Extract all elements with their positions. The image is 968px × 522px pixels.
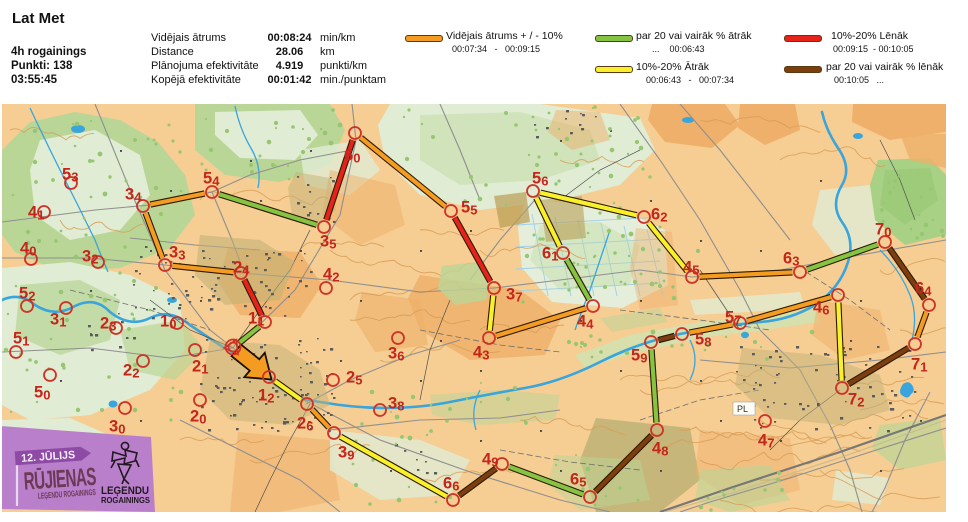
svg-text:PL: PL [737, 404, 748, 414]
svg-text:ROGAININGS: ROGAININGS [101, 495, 150, 505]
